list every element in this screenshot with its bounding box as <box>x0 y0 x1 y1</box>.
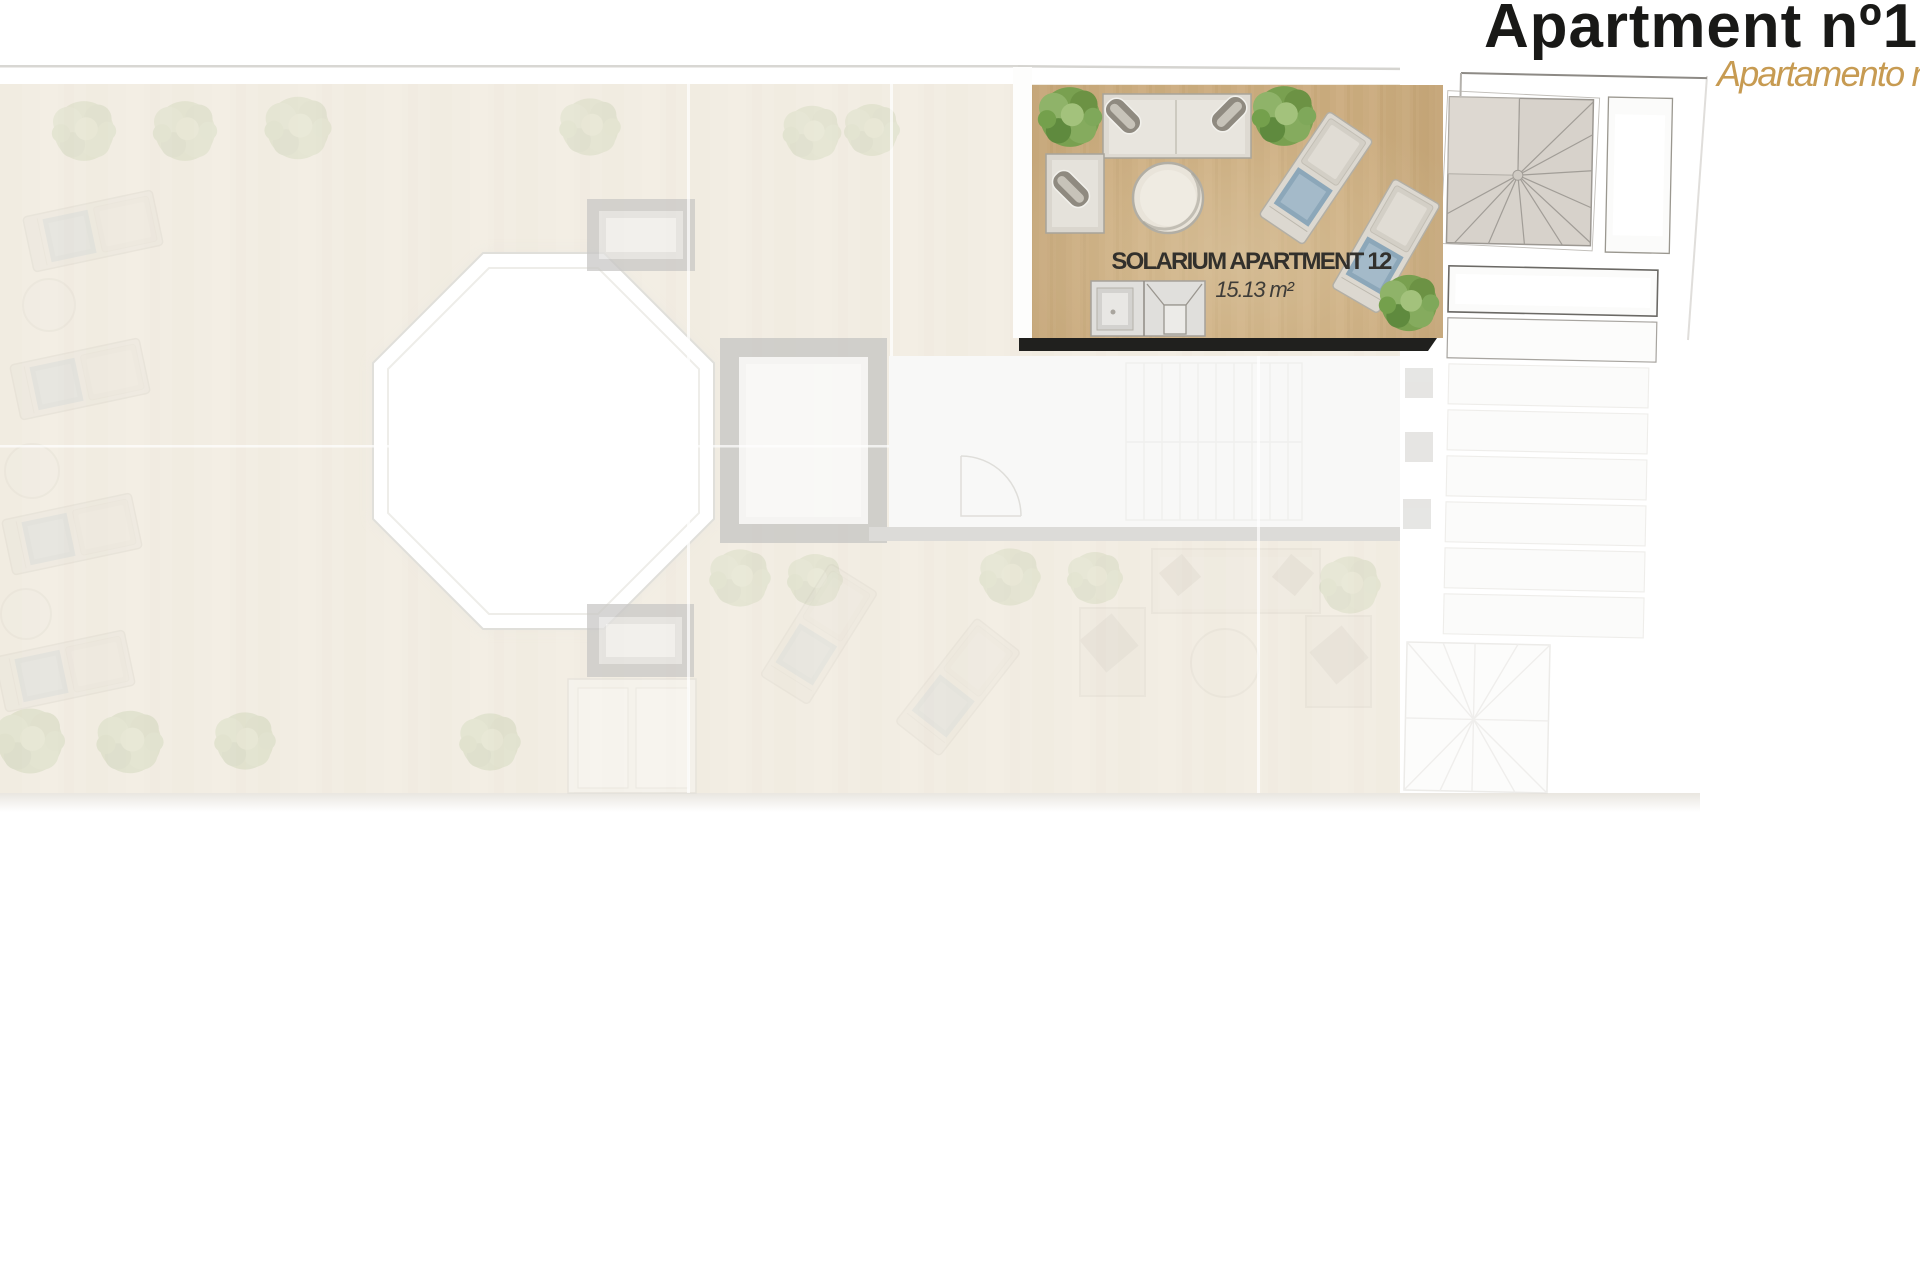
svg-text:SOLARIUM APARTMENT 12: SOLARIUM APARTMENT 12 <box>1111 248 1392 275</box>
svg-text:Apartamento nº12: Apartamento nº12 <box>1715 53 1920 94</box>
svg-text:15.13 m²: 15.13 m² <box>1215 277 1294 302</box>
svg-text:Apartment nº12: Apartment nº12 <box>1484 0 1920 61</box>
